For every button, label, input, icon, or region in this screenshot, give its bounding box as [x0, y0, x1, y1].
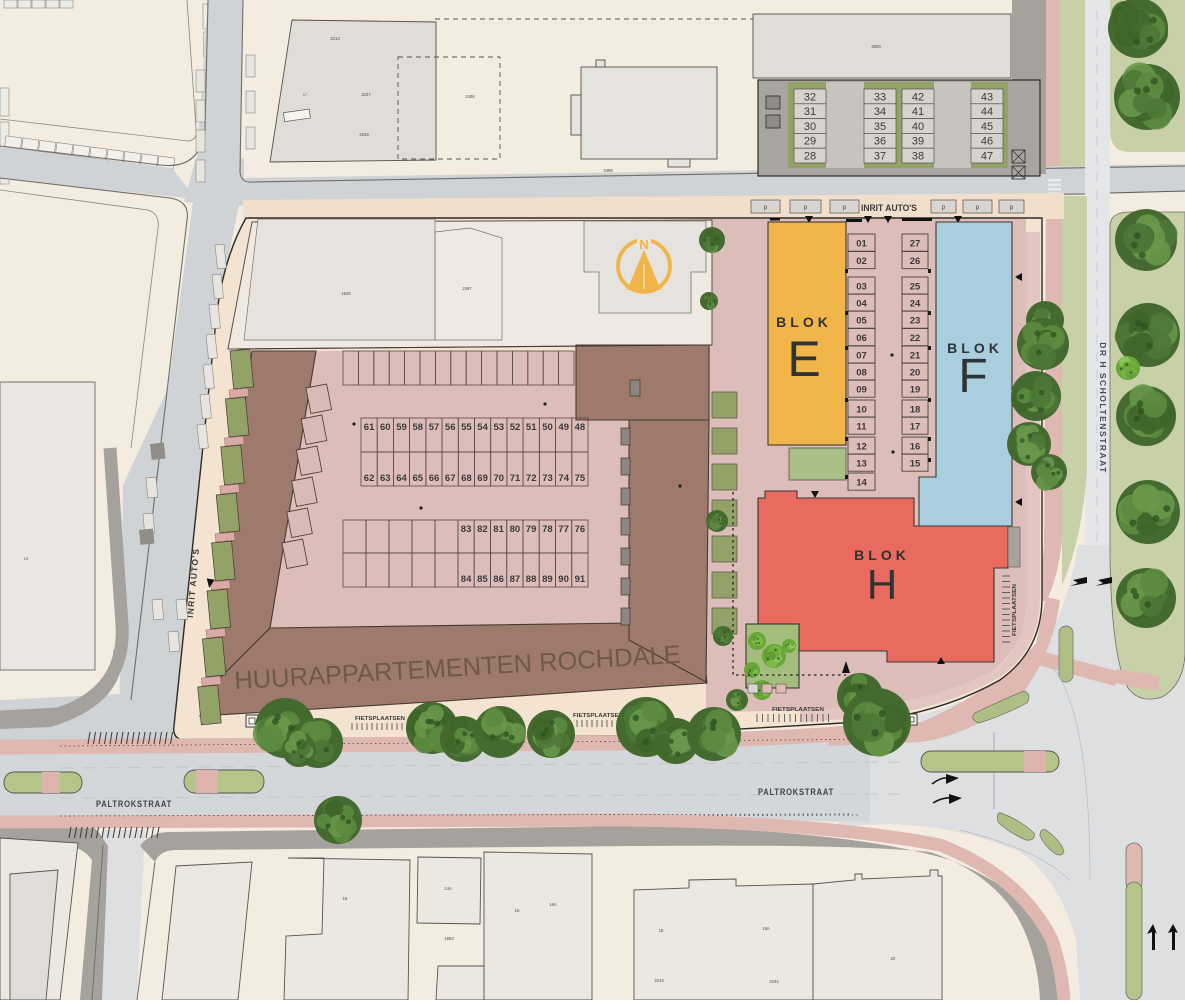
svg-text:57: 57 [429, 422, 440, 433]
svg-text:70: 70 [494, 473, 505, 484]
svg-text:60: 60 [380, 422, 391, 433]
svg-text:FIETSPLAATSEN: FIETSPLAATSEN [772, 707, 824, 713]
svg-text:76: 76 [575, 524, 586, 535]
svg-text:18A: 18A [762, 926, 770, 931]
svg-text:28: 28 [804, 151, 816, 163]
svg-text:27: 27 [910, 239, 921, 250]
svg-text:30: 30 [804, 121, 816, 133]
svg-text:67: 67 [445, 473, 456, 484]
svg-text:40: 40 [912, 121, 924, 133]
svg-text:31: 31 [804, 106, 816, 118]
svg-text:32: 32 [804, 91, 816, 103]
svg-text:54: 54 [477, 422, 488, 433]
svg-text:35: 35 [874, 121, 886, 133]
svg-text:89: 89 [542, 574, 553, 585]
svg-text:20: 20 [910, 368, 921, 379]
svg-text:24: 24 [910, 299, 921, 310]
svg-text:69: 69 [477, 473, 488, 484]
svg-text:16A: 16A [549, 902, 557, 907]
svg-text:06: 06 [856, 333, 867, 344]
svg-text:21: 21 [910, 351, 921, 362]
svg-text:44: 44 [981, 106, 993, 118]
svg-text:83: 83 [461, 524, 472, 535]
svg-text:73: 73 [542, 473, 553, 484]
svg-text:09: 09 [856, 385, 867, 396]
svg-text:53: 53 [494, 422, 505, 433]
svg-text:01: 01 [856, 239, 867, 250]
svg-text:BLOK: BLOK [776, 314, 832, 330]
svg-text:80: 80 [510, 524, 521, 535]
svg-text:63: 63 [380, 473, 391, 484]
svg-text:2227: 2227 [361, 92, 371, 97]
svg-text:13: 13 [856, 459, 867, 470]
svg-text:19: 19 [910, 385, 921, 396]
svg-text:43: 43 [981, 91, 993, 103]
svg-text:04: 04 [856, 299, 867, 310]
svg-text:1626: 1626 [341, 291, 351, 296]
svg-text:88: 88 [526, 574, 537, 585]
svg-text:14: 14 [856, 478, 867, 489]
svg-text:45: 45 [981, 121, 993, 133]
svg-text:16: 16 [910, 442, 921, 453]
svg-text:74: 74 [558, 473, 569, 484]
svg-text:81: 81 [493, 524, 504, 535]
svg-text:18: 18 [659, 928, 664, 933]
svg-text:82: 82 [477, 524, 488, 535]
svg-text:2213: 2213 [330, 36, 340, 41]
svg-text:20: 20 [891, 956, 896, 961]
svg-text:39: 39 [912, 136, 924, 148]
svg-text:50: 50 [542, 422, 553, 433]
svg-text:61: 61 [364, 422, 375, 433]
svg-text:19: 19 [24, 556, 29, 561]
svg-text:2487: 2487 [462, 286, 472, 291]
svg-text:75: 75 [575, 473, 586, 484]
svg-text:15: 15 [343, 896, 348, 901]
svg-text:56: 56 [445, 422, 456, 433]
svg-text:2498: 2498 [603, 168, 613, 173]
svg-text:42: 42 [912, 91, 924, 103]
svg-text:55: 55 [461, 422, 472, 433]
svg-text:E: E [787, 331, 820, 387]
svg-text:16: 16 [515, 908, 520, 913]
svg-text:08: 08 [856, 368, 867, 379]
svg-text:15: 15 [910, 459, 921, 470]
svg-text:52: 52 [510, 422, 521, 433]
svg-text:86: 86 [493, 574, 504, 585]
svg-text:78: 78 [542, 524, 553, 535]
svg-text:66: 66 [429, 473, 440, 484]
svg-text:41: 41 [912, 106, 924, 118]
svg-text:22: 22 [910, 333, 921, 344]
svg-text:PALTROKSTRAAT: PALTROKSTRAAT [96, 799, 172, 810]
svg-text:25: 25 [910, 282, 921, 293]
svg-text:2244: 2244 [769, 979, 779, 984]
svg-text:87: 87 [510, 574, 521, 585]
svg-text:34: 34 [874, 106, 886, 118]
svg-text:FIETSPLAATSEN: FIETSPLAATSEN [1012, 584, 1018, 636]
svg-text:17: 17 [303, 93, 307, 97]
svg-text:71: 71 [510, 473, 521, 484]
svg-text:1663: 1663 [444, 936, 454, 941]
svg-text:29: 29 [804, 136, 816, 148]
svg-text:84: 84 [461, 574, 472, 585]
svg-text:64: 64 [396, 473, 407, 484]
svg-text:18: 18 [910, 405, 921, 416]
svg-text:65: 65 [413, 473, 424, 484]
svg-text:17: 17 [910, 422, 921, 433]
svg-text:F: F [958, 350, 987, 403]
svg-text:23: 23 [910, 316, 921, 327]
svg-text:58: 58 [413, 422, 424, 433]
svg-text:91: 91 [575, 574, 586, 585]
svg-text:07: 07 [856, 351, 867, 362]
svg-text:79: 79 [526, 524, 537, 535]
svg-text:02: 02 [856, 256, 867, 267]
svg-text:59: 59 [396, 422, 407, 433]
svg-text:33: 33 [874, 91, 886, 103]
svg-text:38: 38 [912, 151, 924, 163]
svg-text:2229: 2229 [359, 132, 369, 137]
svg-text:47: 47 [981, 151, 993, 163]
svg-text:26: 26 [910, 256, 921, 267]
svg-text:10: 10 [856, 405, 867, 416]
svg-text:36: 36 [874, 136, 886, 148]
svg-text:77: 77 [558, 524, 569, 535]
svg-text:INRIT AUTO'S: INRIT AUTO'S [861, 203, 917, 213]
svg-text:2496: 2496 [465, 94, 475, 99]
svg-text:49: 49 [558, 422, 569, 433]
svg-text:12: 12 [856, 442, 867, 453]
svg-text:68: 68 [461, 473, 472, 484]
svg-text:2500: 2500 [871, 44, 881, 49]
svg-text:37: 37 [874, 151, 886, 163]
svg-text:14A: 14A [444, 886, 452, 891]
svg-text:72: 72 [526, 473, 537, 484]
svg-text:PALTROKSTRAAT: PALTROKSTRAAT [758, 787, 834, 798]
svg-text:FIETSPLAATSEN: FIETSPLAATSEN [355, 716, 405, 722]
svg-text:FIETSPLAATSEN: FIETSPLAATSEN [573, 713, 623, 719]
svg-text:N: N [639, 237, 648, 252]
svg-text:85: 85 [477, 574, 488, 585]
svg-text:90: 90 [558, 574, 569, 585]
svg-text:62: 62 [364, 473, 375, 484]
svg-text:2243: 2243 [654, 978, 664, 983]
svg-text:11: 11 [856, 422, 867, 433]
svg-text:51: 51 [526, 422, 537, 433]
svg-text:DR H SCHOLTENSTRAAT: DR H SCHOLTENSTRAAT [1098, 342, 1108, 474]
svg-text:05: 05 [856, 316, 867, 327]
svg-text:48: 48 [575, 422, 586, 433]
svg-text:03: 03 [856, 282, 867, 293]
svg-text:H: H [867, 561, 897, 608]
svg-text:46: 46 [981, 136, 993, 148]
